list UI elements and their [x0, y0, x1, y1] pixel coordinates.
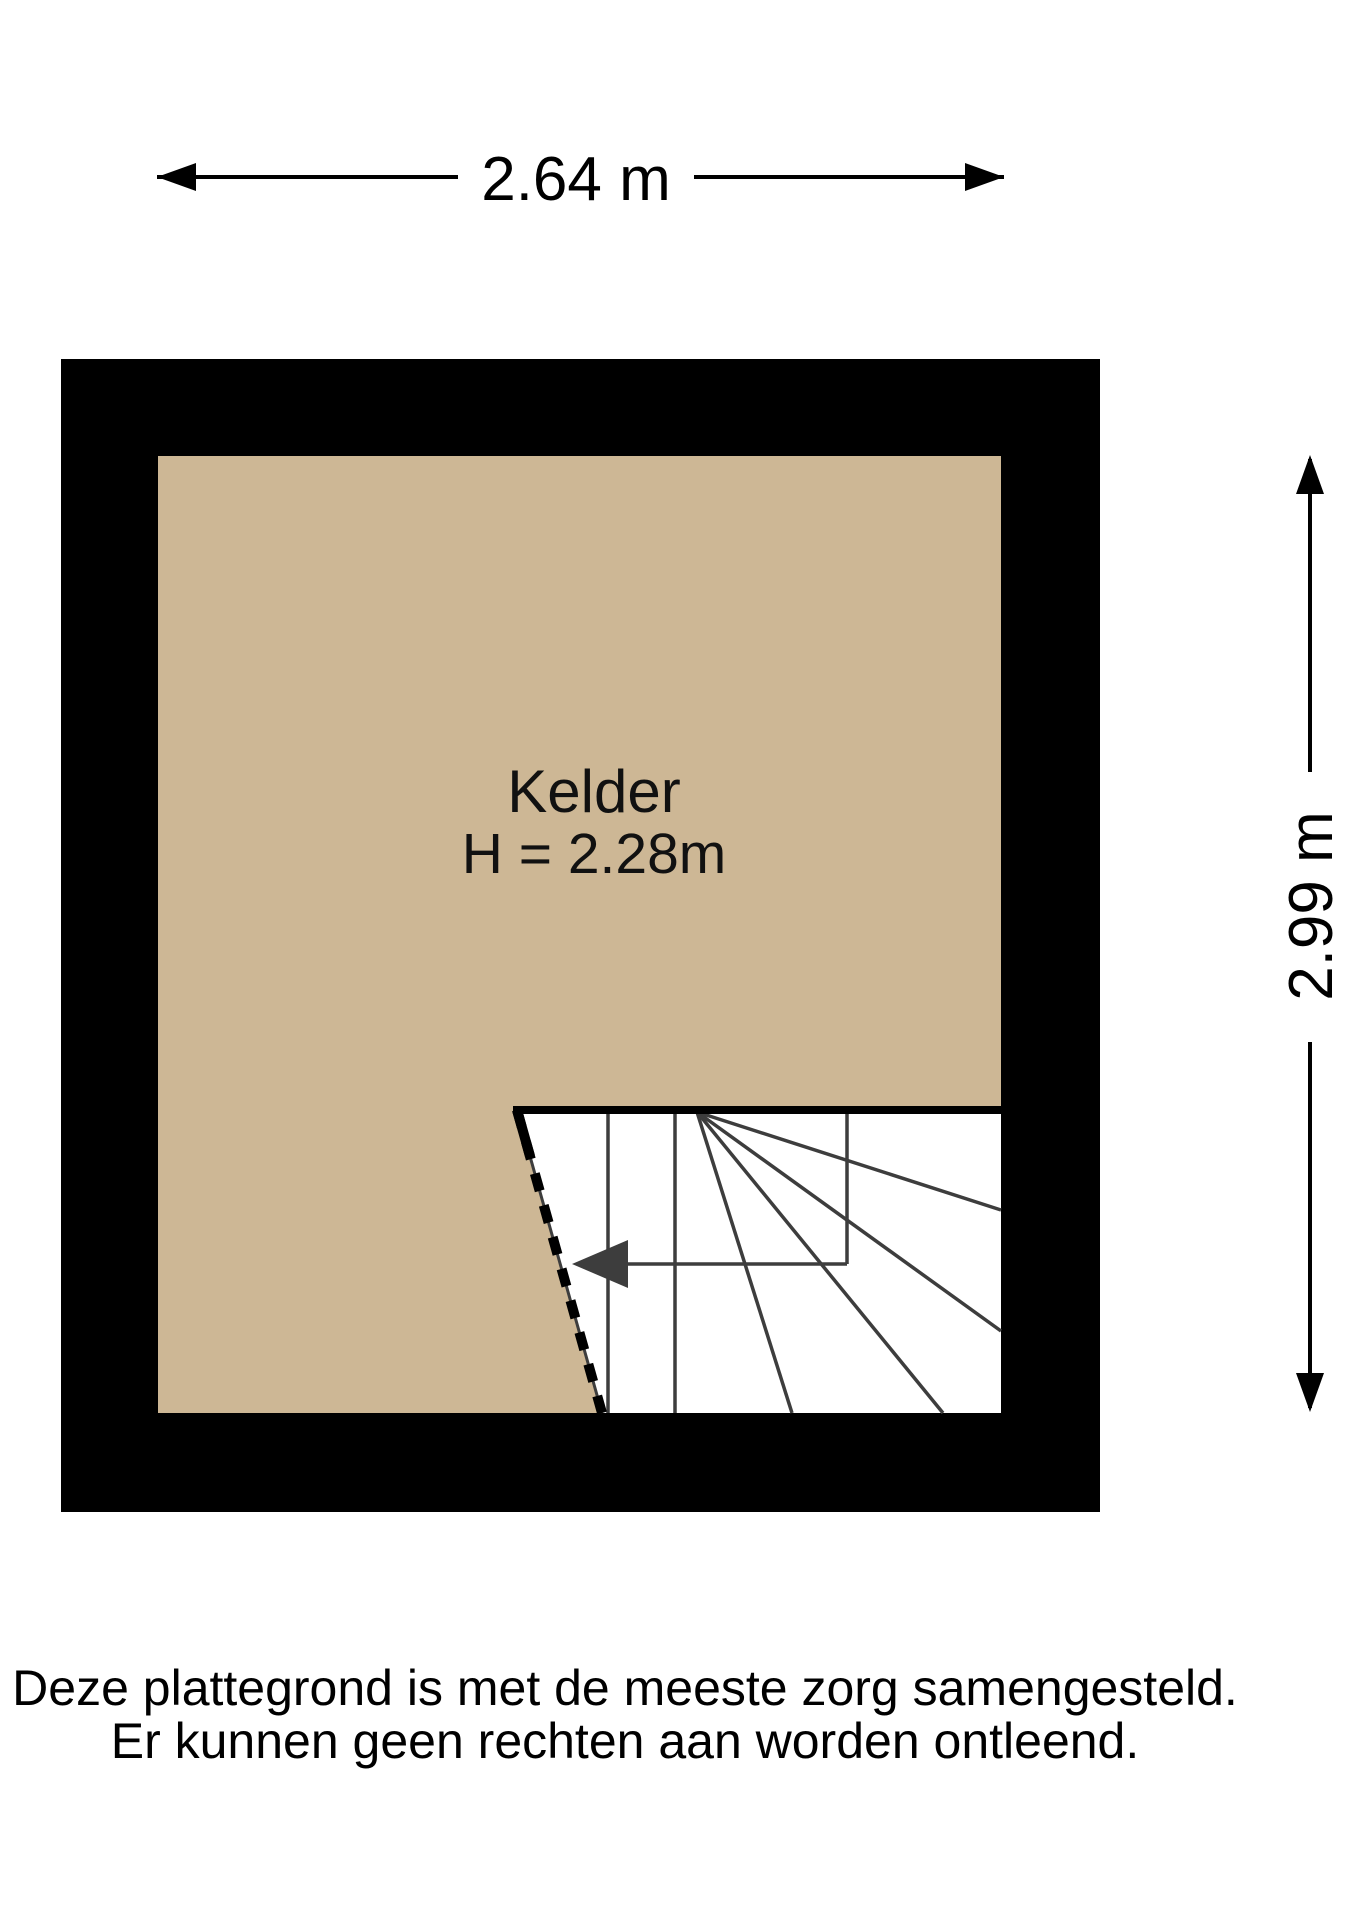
width-dimension: 2.64 m — [157, 145, 1004, 214]
width-dimension-label: 2.64 m — [481, 145, 671, 214]
room-height-label: H = 2.28m — [462, 822, 727, 886]
height-dimension-label: 2.99 m — [1277, 811, 1346, 1001]
arrow-up-icon — [1296, 455, 1324, 494]
arrow-left-icon — [157, 163, 196, 191]
arrow-down-icon — [1296, 1373, 1324, 1412]
floorplan-page: 2.64 m 2.99 m Kelder H = 2.28m Deze plat… — [0, 0, 1358, 1920]
arrow-right-icon — [965, 163, 1004, 191]
disclaimer-line-1: Deze plattegrond is met de meeste zorg s… — [12, 1660, 1238, 1716]
room-name-label: Kelder — [507, 758, 680, 825]
floorplan-drawing: 2.64 m 2.99 m Kelder H = 2.28m Deze plat… — [0, 0, 1358, 1920]
height-dimension: 2.99 m — [1277, 455, 1346, 1412]
disclaimer-line-2: Er kunnen geen rechten aan worden ontlee… — [111, 1713, 1140, 1769]
